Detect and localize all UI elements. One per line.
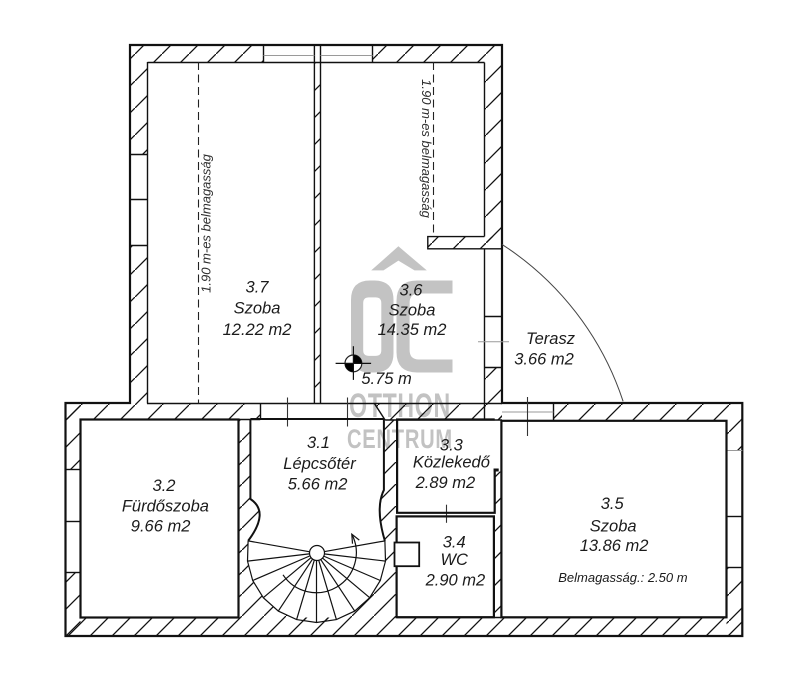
svg-text:2.89 m2: 2.89 m2: [415, 474, 476, 492]
svg-text:14.35 m2: 14.35 m2: [378, 321, 447, 339]
svg-text:1.90 m-es belmagasság: 1.90 m-es belmagasság: [199, 153, 214, 293]
svg-text:Belmagasság.: 2.50 m: Belmagasság.: 2.50 m: [558, 570, 688, 585]
svg-text:Lépcsőtér: Lépcsőtér: [283, 455, 357, 473]
svg-text:3.1: 3.1: [307, 434, 330, 452]
svg-text:9.66 m2: 9.66 m2: [131, 518, 191, 536]
svg-text:3.5: 3.5: [601, 495, 625, 513]
svg-text:13.86 m2: 13.86 m2: [580, 537, 649, 555]
svg-text:Szoba: Szoba: [389, 302, 436, 320]
svg-text:Szoba: Szoba: [234, 300, 281, 318]
svg-text:3.7: 3.7: [246, 279, 270, 297]
svg-text:2.90 m2: 2.90 m2: [425, 571, 486, 589]
svg-text:Terasz: Terasz: [526, 330, 576, 348]
svg-text:Szoba: Szoba: [590, 517, 637, 535]
svg-text:3.6: 3.6: [400, 282, 424, 300]
svg-text:WC: WC: [440, 551, 468, 569]
svg-text:CENTRUM: CENTRUM: [347, 424, 453, 453]
svg-text:Közlekedő: Közlekedő: [413, 454, 491, 472]
svg-text:3.2: 3.2: [153, 477, 176, 495]
svg-text:5.66 m2: 5.66 m2: [288, 476, 348, 494]
svg-text:3.66 m2: 3.66 m2: [514, 350, 574, 368]
svg-text:1.90 m-es belmagasság: 1.90 m-es belmagasság: [419, 79, 434, 219]
svg-text:3.3: 3.3: [440, 436, 464, 454]
svg-text:5.75 m: 5.75 m: [361, 370, 411, 388]
svg-text:3.4: 3.4: [443, 533, 466, 551]
svg-text:12.22 m2: 12.22 m2: [223, 321, 292, 339]
svg-text:Fürdőszoba: Fürdőszoba: [122, 497, 209, 515]
